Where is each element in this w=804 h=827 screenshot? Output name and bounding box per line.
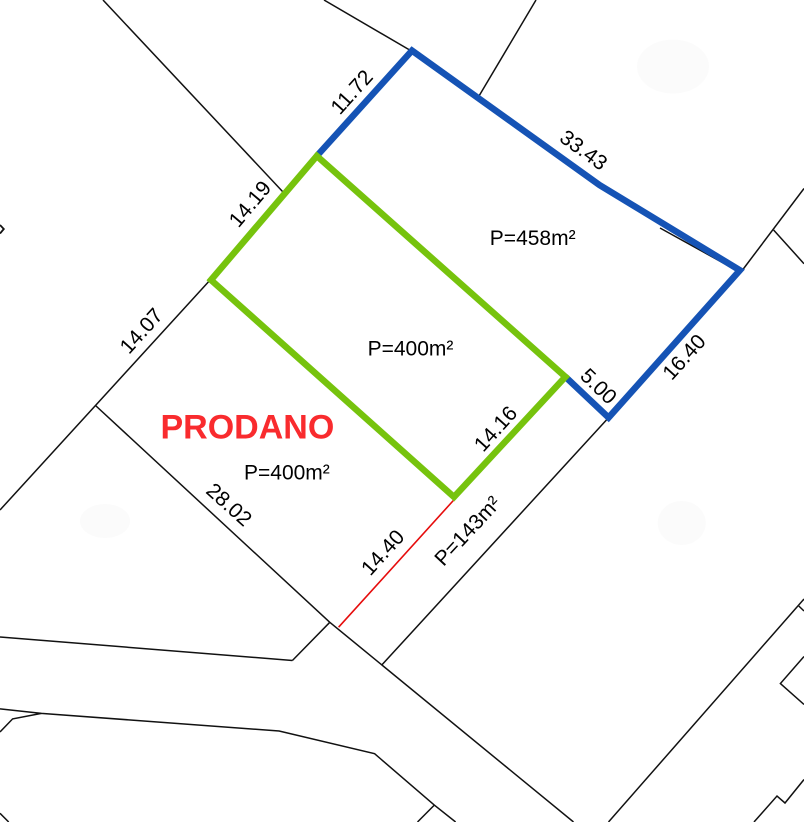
svg-text:P=458m²: P=458m²	[490, 227, 576, 250]
svg-text:PRODANO: PRODANO	[161, 409, 335, 447]
svg-text:P=400m²: P=400m²	[244, 461, 330, 484]
svg-text:P=400m²: P=400m²	[368, 338, 454, 361]
